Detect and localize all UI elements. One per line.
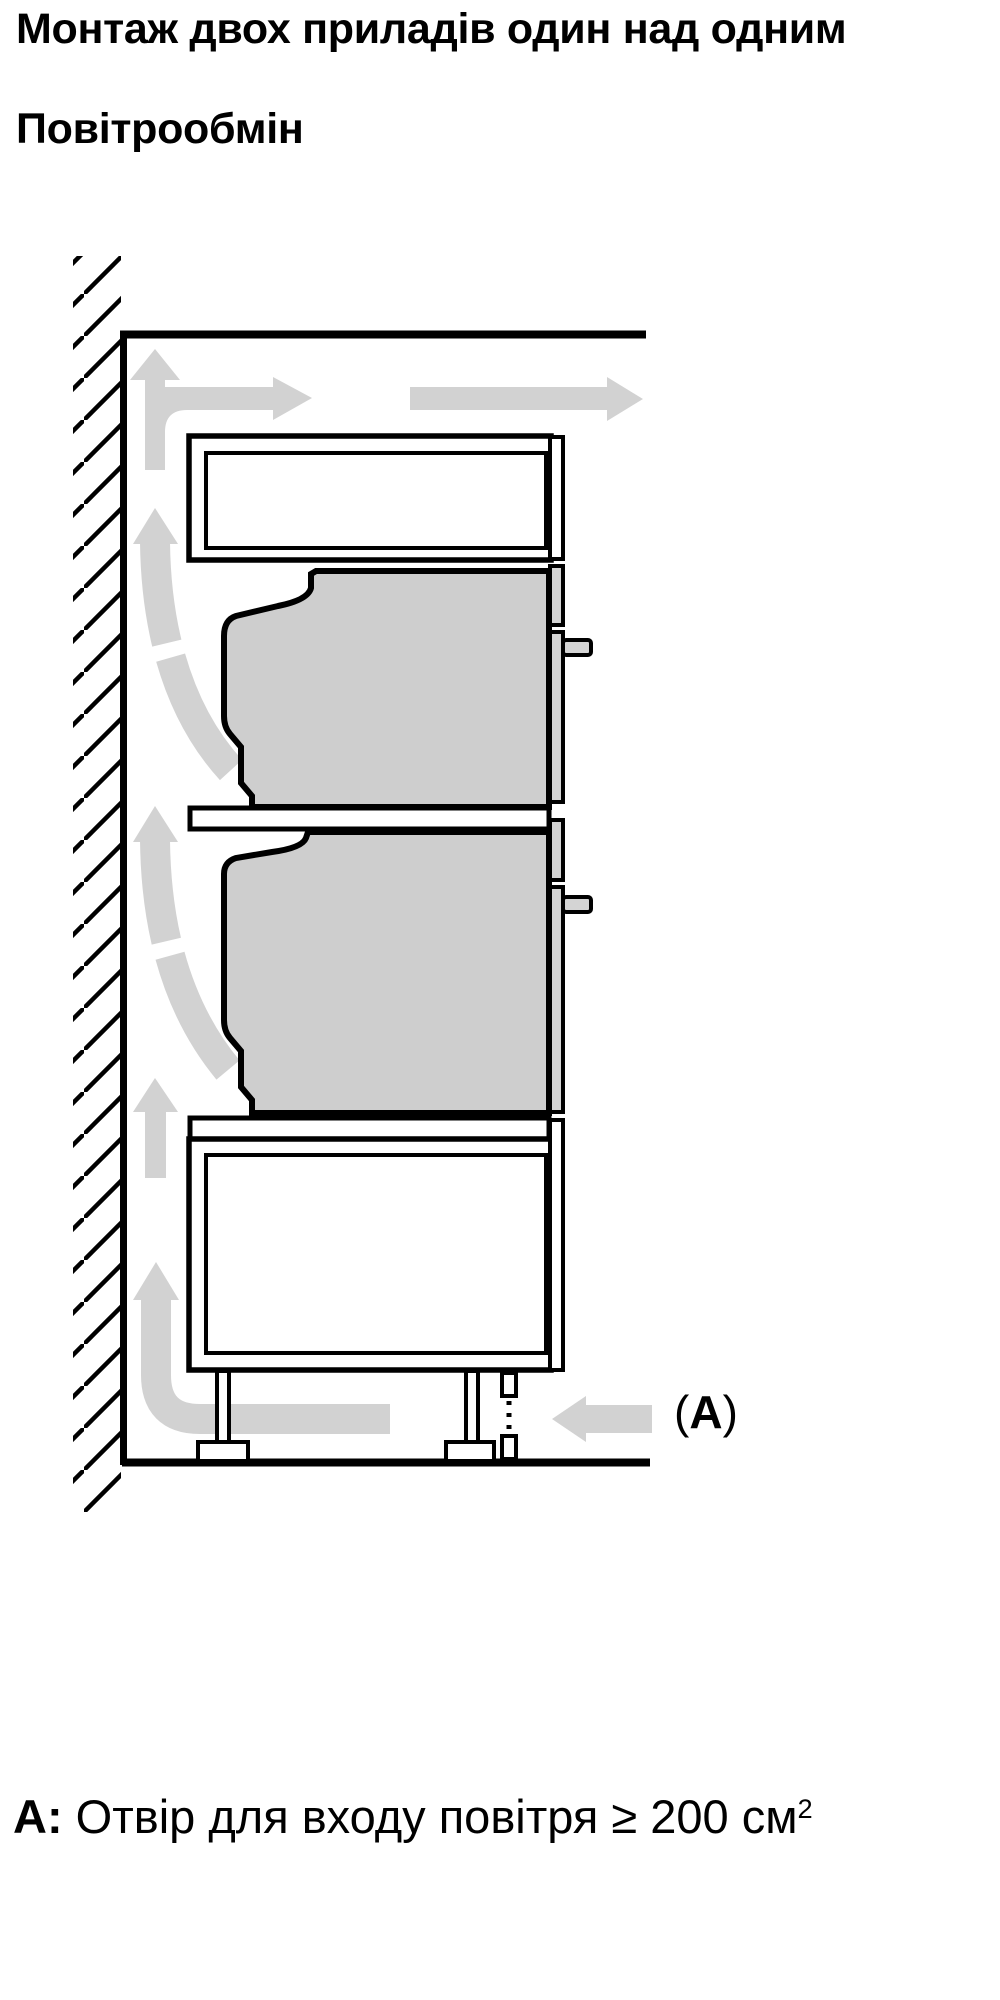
plinth-air-gap-markers bbox=[502, 1373, 516, 1459]
top-cabinet-inner bbox=[206, 453, 546, 548]
base-cabinet-right-foot bbox=[446, 1442, 494, 1461]
label-letter: A bbox=[689, 1386, 722, 1438]
arrow-curved-shaft bbox=[155, 542, 231, 770]
base-cabinet-front-strip bbox=[550, 1120, 563, 1370]
paren-open: ( bbox=[674, 1386, 689, 1438]
arrow-up-head bbox=[133, 508, 178, 544]
ceiling-outflow-arrow bbox=[410, 377, 643, 421]
arrow-curved-shaft bbox=[155, 840, 228, 1070]
wall-hatching bbox=[73, 256, 121, 1512]
arrow-up-head bbox=[133, 1078, 178, 1112]
upper-oven bbox=[224, 566, 591, 807]
top-cabinet bbox=[189, 436, 563, 560]
figure-label-a: (A) bbox=[674, 1385, 738, 1440]
arrow-shaft bbox=[586, 1405, 652, 1433]
air-gap-marker-bottom bbox=[502, 1436, 516, 1459]
lower-oven bbox=[224, 820, 591, 1113]
airflow-diagram bbox=[0, 0, 1000, 2000]
arrow-up-head bbox=[130, 349, 180, 380]
middle-shelf-board bbox=[190, 808, 549, 829]
air-gap-marker-top bbox=[502, 1373, 516, 1396]
upper-oven-control-panel-strip bbox=[550, 566, 563, 625]
upper-oven-door-strip bbox=[550, 632, 563, 802]
base-cabinet-inner bbox=[206, 1155, 546, 1353]
lower-oven-body bbox=[224, 832, 549, 1113]
lower-oven-control-panel-strip bbox=[550, 820, 563, 880]
base-cabinet-right-leg bbox=[466, 1371, 478, 1442]
paren-close: ) bbox=[723, 1386, 738, 1438]
upper-oven-body bbox=[224, 571, 549, 807]
upper-oven-door-handle bbox=[563, 640, 591, 655]
top-cabinet-front-strip bbox=[550, 437, 563, 559]
arrow-right-head bbox=[607, 377, 643, 421]
base-cabinet-left-foot bbox=[198, 1442, 248, 1461]
base-cabinet-back-airflow-arrow bbox=[133, 1078, 178, 1178]
arrow-up-head bbox=[133, 1262, 179, 1300]
arrow-right-head bbox=[273, 377, 312, 420]
arrow-shaft bbox=[145, 1110, 166, 1178]
caption-text: Отвір для входу повітря ≥ 200 см bbox=[63, 1790, 798, 1843]
arrow-left-head bbox=[552, 1396, 586, 1442]
caption-label: A: bbox=[13, 1790, 63, 1843]
manual-page: Монтаж двох приладів один над одним Пові… bbox=[0, 0, 1000, 2000]
arrow-shaft bbox=[410, 387, 607, 410]
lower-oven-back-airflow-arrow bbox=[133, 806, 228, 1070]
caption-superscript: 2 bbox=[798, 1793, 813, 1824]
figure-caption: A: Отвір для входу повітря ≥ 200 см2 bbox=[13, 1789, 813, 1845]
air-inlet-arrow bbox=[552, 1396, 652, 1442]
lower-oven-door-handle bbox=[563, 897, 591, 912]
lower-oven-door-strip bbox=[550, 887, 563, 1112]
base-cabinet-left-leg bbox=[217, 1371, 229, 1442]
arrow-up-head bbox=[133, 806, 178, 842]
